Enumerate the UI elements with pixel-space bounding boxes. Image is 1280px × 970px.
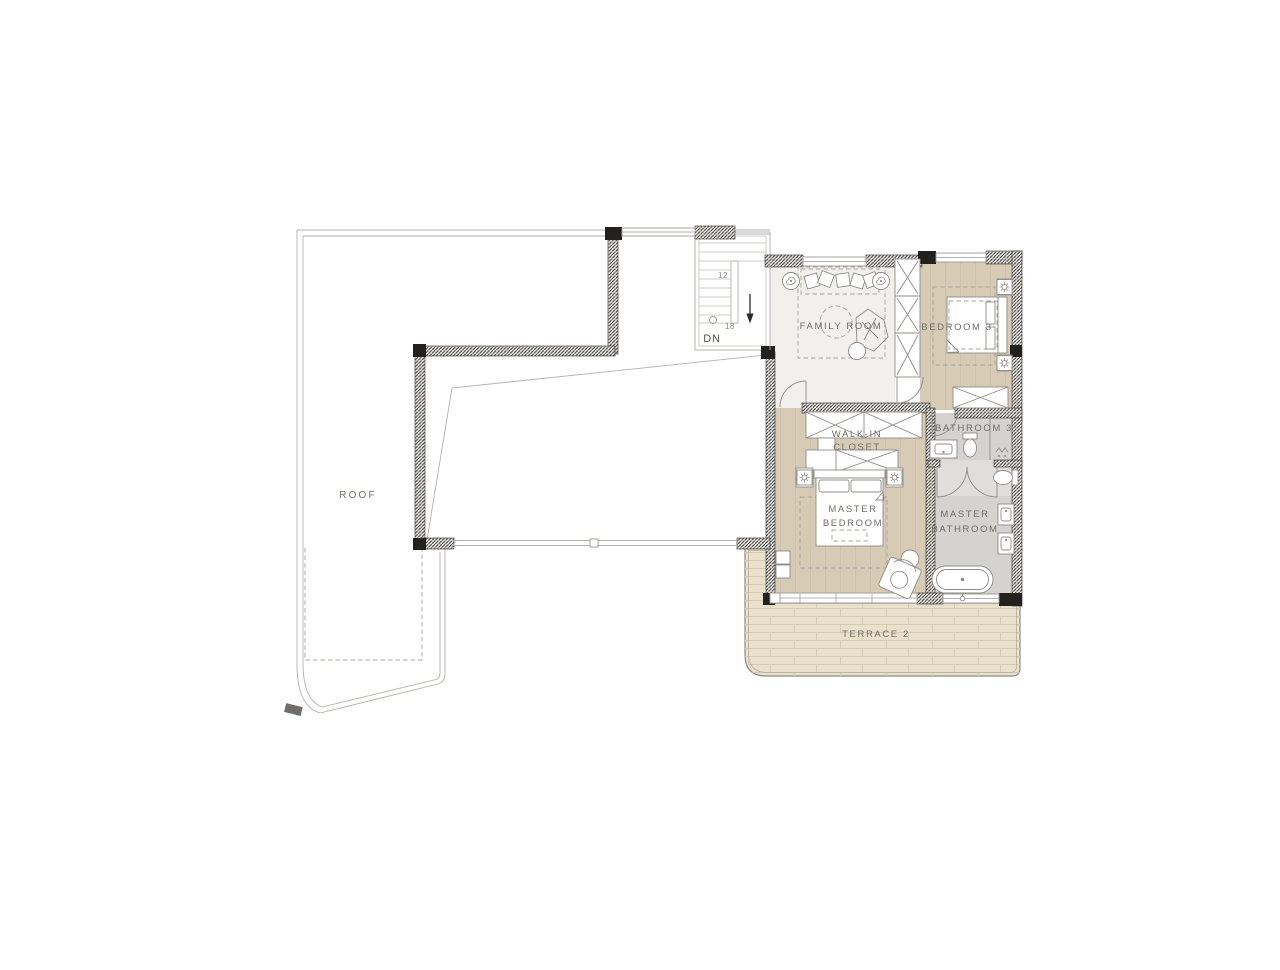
wall-roof-horizontal [415,346,615,356]
bed-headboard [814,470,885,478]
window-family-top [803,257,866,266]
room-label-master-bathroom-2: BATHROOM [932,524,999,535]
roof-slope-line [426,355,766,546]
toilet [963,433,977,457]
dresser [776,551,790,564]
room-label-bathroom3: BATHROOM 3 [935,423,1013,434]
wall-block [761,346,775,359]
wall-family-top-left [765,255,803,267]
door-bedroom3 [897,377,923,403]
wall-block [605,227,622,240]
lamp-icon [887,470,902,485]
bed-headboard [998,297,1007,353]
floor-plan-page: ROOF 12 18 DN [0,0,1280,970]
floor-plan-drawing: ROOF 12 18 DN [0,0,1280,970]
vanity-sink [930,440,957,458]
wall-top-stair [695,226,735,239]
wall-block [413,538,426,550]
toilet [994,470,1019,485]
room-label-master-bathroom-1: MASTER [940,509,989,520]
lamp-icon [997,356,1012,371]
room-label-family: FAMILY ROOM [800,321,883,332]
roof-overhang-dashed [305,548,422,660]
wall-bathroom3-top [955,408,1022,418]
wall-bath-divider-right [994,460,1022,467]
room-label-walkin-1: WALK-IN [832,429,882,440]
wall-parapet-right [737,538,770,549]
vanity-sink [998,533,1014,554]
room-label-master-bedroom-2: BEDROOM [823,518,883,529]
window-bath-bottom [943,594,999,603]
window-top-roof [622,228,695,236]
staircase: 12 18 DN [695,232,770,350]
stair-count-upper: 12 [718,271,728,280]
parapet-rail [452,539,737,547]
window-bedroom3-top [936,253,986,262]
stair-count-lower: 18 [725,322,735,331]
lamp-icon [797,470,812,485]
wardrobe-low [806,450,898,472]
window-master-bottom [770,593,917,603]
roof-edge-tick [284,703,303,716]
bed-pillow [819,480,849,492]
wall-block [918,251,936,264]
room-label-master-bedroom-1: MASTER [828,504,877,515]
plant-table-icon [783,273,800,290]
wall-block [413,344,426,357]
wall-suite-left [766,352,775,604]
room-label-roof: ROOF [339,490,377,501]
room-label-terrace2: TERRACE 2 [842,629,910,640]
wall-roof-vertical [608,228,618,354]
wall-block [999,593,1022,606]
hall-closet [895,259,920,377]
plant-table-icon [873,273,890,290]
wall-mid [802,403,930,413]
dresser [953,387,1008,408]
wall-bath-divider-left [928,460,940,467]
lamp-icon [997,280,1012,295]
bed-pillow [851,480,881,492]
stair-direction-label: DN [703,333,721,345]
dresser [776,565,790,578]
roof-outline: ROOF [284,230,766,716]
bed-pillow [986,302,995,324]
room-label-bedroom3: BEDROOM 3 [921,322,992,333]
stair-divider [731,261,738,323]
wall-bottom-mid [917,593,943,604]
vanity-sink [998,504,1014,525]
wall-roof-left [415,346,425,548]
